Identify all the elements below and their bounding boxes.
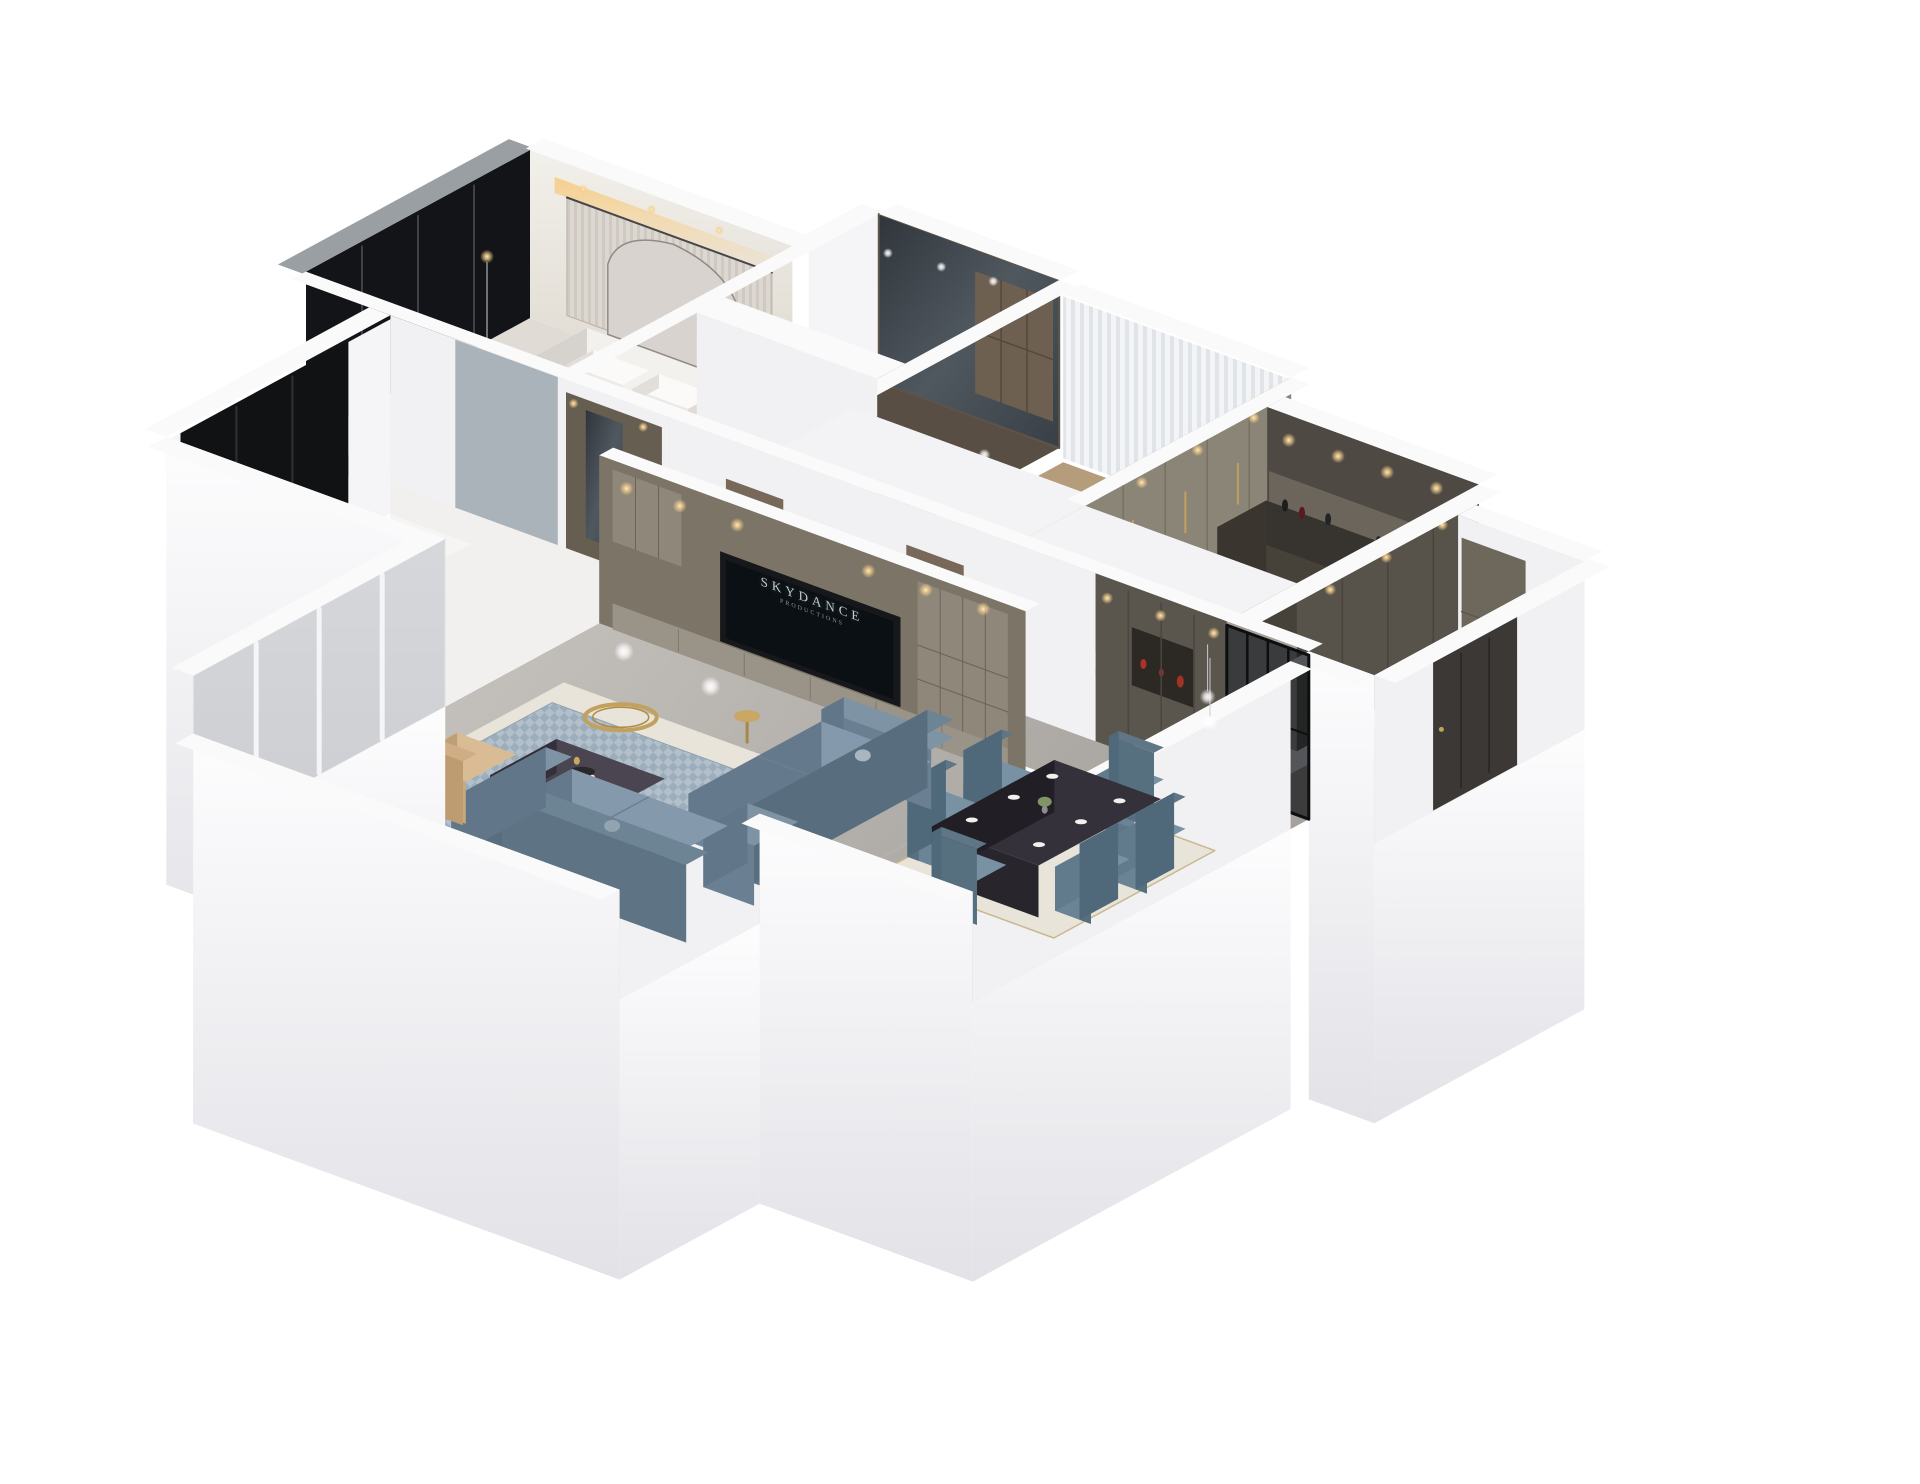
tv-wall-downlights [620, 482, 634, 496]
bedroom-downlights [714, 225, 724, 235]
kitchen-downlights [1331, 449, 1345, 463]
bottle [1325, 513, 1331, 525]
closet-downlights [883, 248, 893, 258]
closet-downlights [988, 276, 998, 286]
plate [1114, 798, 1126, 803]
plate [1008, 795, 1020, 800]
cabinet-downlights [1155, 610, 1167, 622]
bedroom-downlights [647, 205, 657, 215]
floor-light-pools [701, 676, 721, 696]
tv-wall-downlights [730, 518, 744, 532]
floorplan-scene [0, 0, 1920, 1484]
plate [1075, 819, 1087, 824]
floor-lamp-light [480, 250, 494, 264]
decor-bottle [574, 757, 580, 765]
plate [1046, 774, 1058, 779]
kitchen-downlights [1282, 433, 1296, 447]
study-west-wall [348, 319, 390, 536]
plate [966, 818, 978, 823]
pendant-lights [1202, 714, 1218, 730]
bottle [1299, 507, 1305, 519]
throw-pillow [604, 820, 620, 832]
floor-light-pools [614, 642, 634, 662]
throw-pillow [855, 749, 871, 761]
cabinet-downlights [1101, 592, 1113, 604]
red-vase [1177, 676, 1184, 688]
centerpiece-flowers [1038, 797, 1052, 807]
apartment-3d-floorplan-render: SKYDANCE PRODUCTIONS [0, 0, 1920, 1484]
kitchen-downlights [1429, 481, 1443, 495]
red-vase [1140, 659, 1146, 669]
pendant-lights [1200, 689, 1216, 705]
gold-side-table [734, 710, 760, 722]
bottle [1282, 499, 1288, 511]
tv-wall-downlights [919, 583, 933, 597]
tv-wall-downlights [673, 499, 687, 513]
study-downlights [569, 399, 579, 409]
vase [1042, 806, 1048, 814]
closet-downlights [936, 262, 946, 272]
cabinet-downlights [1208, 627, 1220, 639]
door-handle [1439, 727, 1444, 732]
bedroom-downlights [578, 184, 588, 194]
kitchen-downlights [1380, 465, 1394, 479]
study-downlights [638, 422, 648, 432]
plate [1033, 842, 1045, 847]
southeast-outer-wall [1309, 651, 1375, 1123]
wardrobe-downlights [1136, 477, 1148, 489]
tv-wall-downlights [976, 602, 990, 616]
tv-wall-downlights [861, 564, 875, 578]
